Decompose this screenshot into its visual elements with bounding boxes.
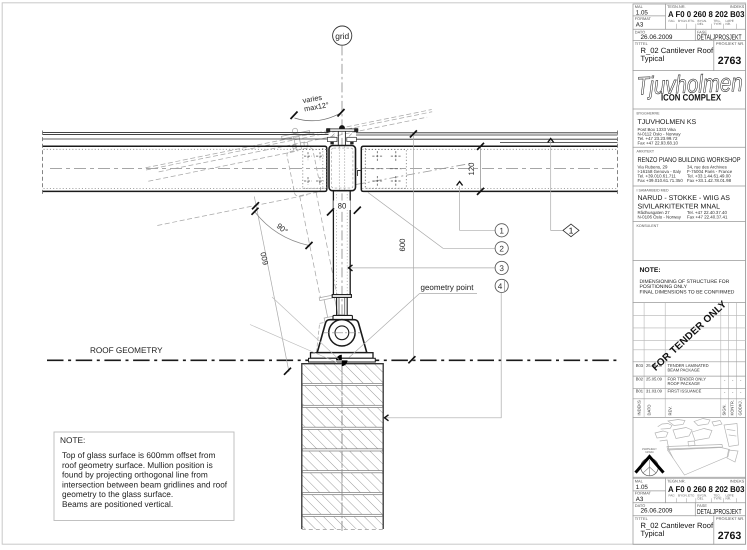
svg-text:PROSJEKT NR.: PROSJEKT NR. (716, 41, 744, 46)
svg-text:INDEKS: INDEKS (637, 400, 642, 416)
svg-text:1.05: 1.05 (636, 9, 649, 16)
svg-text:80: 80 (338, 201, 347, 210)
svg-text:600: 600 (398, 238, 407, 252)
svg-text:ARKITEKT: ARKITEKT (637, 150, 655, 154)
svg-text:Top of glass surface is 600mm: Top of glass surface is 600mm offset fro… (62, 450, 215, 460)
svg-text:DATO: DATO (646, 405, 651, 416)
svg-text:1: 1 (569, 226, 574, 236)
svg-text:KONSULENT: KONSULENT (637, 224, 660, 228)
svg-text:NR.: NR. (726, 497, 731, 501)
svg-text:FIRST ISSUANCE: FIRST ISSUANCE (668, 388, 702, 393)
svg-text:ETG: ETG (688, 494, 695, 498)
svg-text:KONTR.: KONTR. (730, 400, 735, 415)
svg-text:1: 1 (499, 226, 504, 235)
svg-text:FORMAT: FORMAT (635, 16, 652, 21)
svg-text:3: 3 (499, 264, 504, 273)
svg-text:26.06.2009: 26.06.2009 (641, 34, 673, 41)
svg-text:NOTE:: NOTE: (60, 435, 85, 445)
svg-text:geometry to the glass surface.: geometry to the glass surface. (62, 489, 173, 499)
svg-text:Fax +33.1.42.78.01.98: Fax +33.1.42.78.01.98 (687, 178, 732, 183)
svg-text:FINAL DIMENSIONS TO BE CONFIRM: FINAL DIMENSIONS TO BE CONFIRMED (640, 289, 735, 295)
svg-text:A3: A3 (636, 496, 644, 503)
svg-text:DETALJPROSJEKT: DETALJPROSJEKT (697, 507, 742, 516)
svg-text:REV.: REV. (667, 406, 672, 415)
svg-text:B03: B03 (636, 363, 644, 368)
svg-text:ETG: ETG (688, 19, 695, 23)
svg-text:B01: B01 (636, 388, 644, 393)
svg-text:ROOF GEOMETRY: ROOF GEOMETRY (90, 346, 163, 355)
svg-text:intersection between beam grid: intersection between beam gridlines and … (62, 479, 228, 489)
svg-text:TYPE: TYPE (714, 22, 722, 26)
svg-text:DETALJPROSJEKT: DETALJPROSJEKT (697, 33, 742, 42)
svg-text:2763: 2763 (718, 55, 742, 67)
svg-text:A3: A3 (636, 22, 644, 29)
svg-text:I SAMARBEID MED: I SAMARBEID MED (637, 189, 670, 193)
svg-text:TJUVHOLMEN KS: TJUVHOLMEN KS (638, 119, 697, 126)
svg-text:BYGN.: BYGN. (678, 494, 688, 498)
svg-text:2: 2 (499, 244, 504, 253)
svg-text:NARUD - STOKKE - WIIG AS: NARUD - STOKKE - WIIG AS (638, 195, 731, 202)
svg-text:BYGN.: BYGN. (678, 19, 688, 23)
svg-text:found by projecting orthogonal: found by projecting orthogonal line from (62, 470, 208, 480)
svg-text:Fax +47 22.93.68.10: Fax +47 22.93.68.10 (638, 140, 679, 145)
svg-text:Fax +47 22.40.37.41: Fax +47 22.40.37.41 (687, 214, 728, 219)
svg-text:120: 120 (467, 162, 476, 176)
svg-text:25.06.09: 25.06.09 (646, 363, 663, 368)
svg-text:Fax +39.010.61.71.350: Fax +39.010.61.71.350 (638, 178, 684, 183)
svg-text:DEL: DEL (698, 22, 704, 26)
svg-text:FAG: FAG (669, 494, 676, 498)
svg-text:2763: 2763 (718, 530, 742, 542)
svg-text:BYGGHERRE: BYGGHERRE (637, 112, 661, 116)
svg-text:Typical: Typical (641, 529, 665, 538)
svg-text:FAG: FAG (669, 19, 676, 23)
svg-text:DEL: DEL (698, 497, 704, 501)
svg-text:roof geometry surface. Mullion: roof geometry surface. Mullion position … (62, 460, 213, 470)
svg-text:4: 4 (498, 282, 503, 291)
svg-text:BEAM PACKAGE: BEAM PACKAGE (668, 368, 700, 373)
svg-text:grid: grid (335, 31, 349, 41)
svg-text:ICON COMPLEX: ICON COMPLEX (661, 93, 722, 103)
svg-text:PROSJEKT NR.: PROSJEKT NR. (716, 516, 744, 521)
svg-text:25.05.09: 25.05.09 (646, 377, 663, 382)
svg-text:NR.: NR. (726, 22, 731, 26)
svg-text:26.06.2009: 26.06.2009 (641, 507, 673, 514)
svg-text:ROOF PACKAGE: ROOF PACKAGE (668, 381, 701, 386)
svg-text:FORMAT: FORMAT (635, 490, 652, 495)
svg-text:NOTE:: NOTE: (640, 267, 661, 274)
svg-text:Beams are positioned vertical.: Beams are positioned vertical. (62, 499, 173, 509)
svg-text:Typical: Typical (641, 54, 665, 63)
svg-text:31.03.09: 31.03.09 (646, 388, 663, 393)
svg-text:B02: B02 (636, 377, 644, 382)
svg-text:TYPE: TYPE (714, 497, 722, 501)
svg-text:A F0 0 260 8 202 B03: A F0 0 260 8 202 B03 (668, 484, 745, 494)
svg-text:1.05: 1.05 (636, 484, 649, 491)
svg-text:NORD: NORD (645, 450, 653, 454)
svg-text:N-0106 Oslo - Norway: N-0106 Oslo - Norway (638, 214, 682, 219)
svg-text:A F0 0 260 8 202 B03: A F0 0 260 8 202 B03 (668, 9, 745, 19)
svg-text:GODKJ.: GODKJ. (737, 400, 742, 415)
svg-text:RENZO PIANO BUILDING WORKSHOP: RENZO PIANO BUILDING WORKSHOP (638, 157, 741, 164)
svg-text:SIGN.: SIGN. (722, 404, 727, 415)
svg-text:geometry point: geometry point (421, 283, 475, 292)
